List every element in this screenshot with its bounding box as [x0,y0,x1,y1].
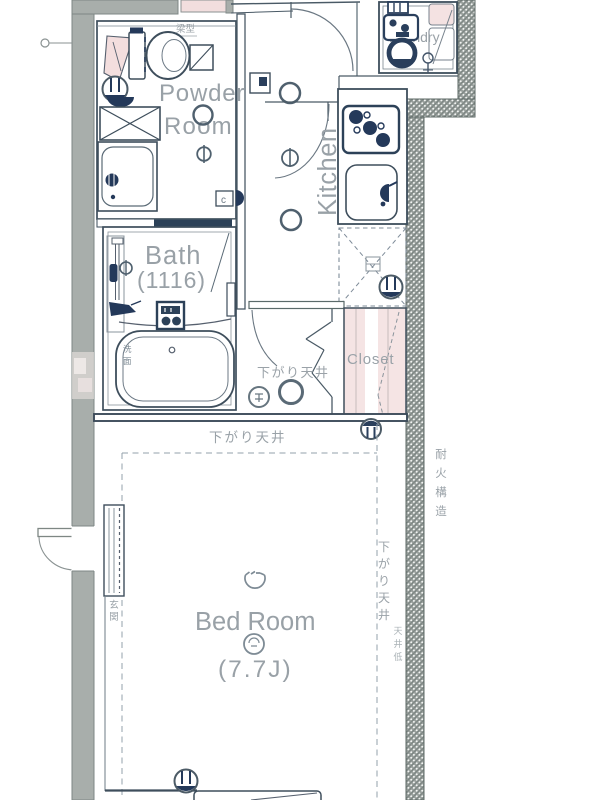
svg-text:下: 下 [378,540,390,554]
svg-text:構: 構 [435,486,447,499]
svg-text:Bath: Bath [145,242,201,270]
svg-text:梁型: 梁型 [176,23,196,35]
svg-text:関: 関 [109,612,119,623]
svg-text:造: 造 [435,504,447,518]
svg-text:り: り [378,574,390,588]
svg-text:Kitchen: Kitchen [314,127,342,216]
svg-text:c: c [221,195,226,206]
svg-text:天: 天 [393,626,402,636]
svg-text:玄: 玄 [109,599,119,611]
svg-text:井: 井 [393,638,402,649]
svg-text:火: 火 [435,467,447,480]
svg-text:天: 天 [378,591,390,605]
svg-text:耐: 耐 [435,448,447,461]
svg-text:洗: 洗 [123,344,132,354]
svg-text:Closet: Closet [347,351,394,368]
svg-text:が: が [378,556,390,571]
svg-text:下がり天井: 下がり天井 [257,365,330,380]
svg-text:Room: Room [164,113,233,140]
svg-text:下がり天井: 下がり天井 [209,430,287,445]
svg-text:面: 面 [123,356,132,366]
svg-text:低: 低 [393,651,402,662]
svg-text:(1116): (1116) [137,267,206,293]
svg-text:(7.7J): (7.7J) [218,656,293,683]
svg-text:井: 井 [378,608,390,622]
svg-text:Bed Room: Bed Room [195,608,315,636]
svg-text:Powder: Powder [159,80,245,107]
